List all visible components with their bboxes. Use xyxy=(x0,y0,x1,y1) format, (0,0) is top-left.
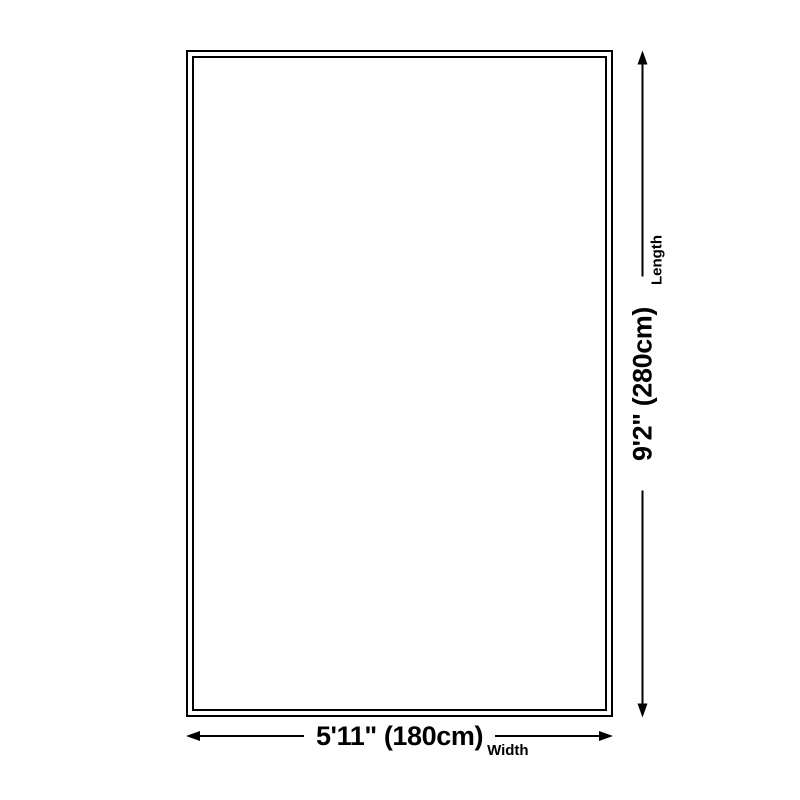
rug-outline xyxy=(186,50,613,717)
length-axis-label: Length xyxy=(649,234,664,284)
width-axis-label: Width xyxy=(487,743,529,758)
dimension-diagram: 5'11" (180cm) Width 9'2" (280cm) Length xyxy=(0,0,800,800)
arrow-right-icon xyxy=(599,731,613,741)
width-dimension-line-left xyxy=(200,735,304,738)
length-value-label: 9'2" (280cm) xyxy=(629,306,656,460)
width-dimension-line-right: Width xyxy=(495,735,599,738)
width-value-label: 5'11" (180cm) xyxy=(316,723,483,750)
width-dimension-indicator: 5'11" (180cm) Width xyxy=(186,706,613,766)
length-dimension-line-top: Length xyxy=(641,64,644,277)
arrow-up-icon xyxy=(637,50,647,64)
length-dimension-line-bottom xyxy=(641,491,644,704)
length-dimension-indicator: 9'2" (280cm) Length xyxy=(612,50,672,717)
arrow-left-icon xyxy=(186,731,200,741)
arrow-down-icon xyxy=(637,703,647,717)
rug-outline-inner-border xyxy=(192,56,607,711)
